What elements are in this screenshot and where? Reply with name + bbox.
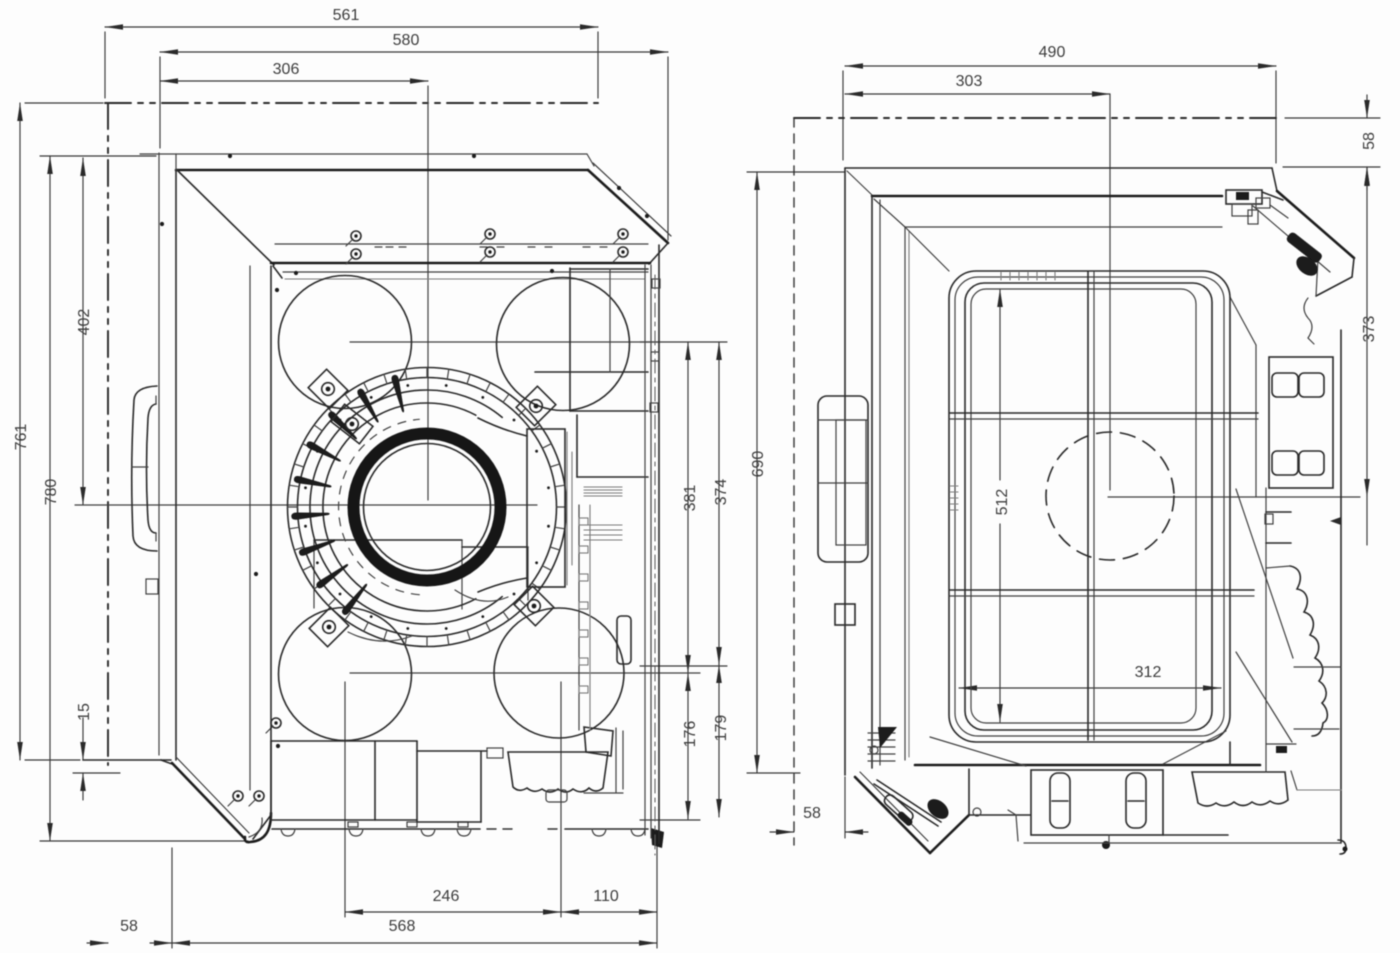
svg-text:306: 306 <box>273 61 300 78</box>
svg-text:15: 15 <box>76 703 93 721</box>
svg-text:561: 561 <box>333 7 360 24</box>
svg-text:58: 58 <box>120 918 138 935</box>
svg-text:381: 381 <box>682 485 699 512</box>
svg-text:690: 690 <box>750 451 767 478</box>
svg-text:512: 512 <box>994 489 1011 516</box>
svg-text:780: 780 <box>43 479 60 506</box>
svg-text:490: 490 <box>1039 44 1066 61</box>
svg-text:246: 246 <box>433 888 460 905</box>
svg-text:761: 761 <box>13 424 30 451</box>
svg-text:58: 58 <box>1361 132 1378 150</box>
svg-text:179: 179 <box>713 715 730 742</box>
svg-text:303: 303 <box>956 73 983 90</box>
svg-text:110: 110 <box>593 888 619 905</box>
svg-text:580: 580 <box>393 32 420 49</box>
svg-text:402: 402 <box>76 309 93 336</box>
svg-text:373: 373 <box>1361 316 1378 343</box>
svg-text:58: 58 <box>803 805 821 822</box>
svg-text:374: 374 <box>713 479 730 506</box>
svg-text:176: 176 <box>682 721 699 748</box>
svg-text:312: 312 <box>1135 664 1162 681</box>
svg-text:568: 568 <box>389 918 416 935</box>
